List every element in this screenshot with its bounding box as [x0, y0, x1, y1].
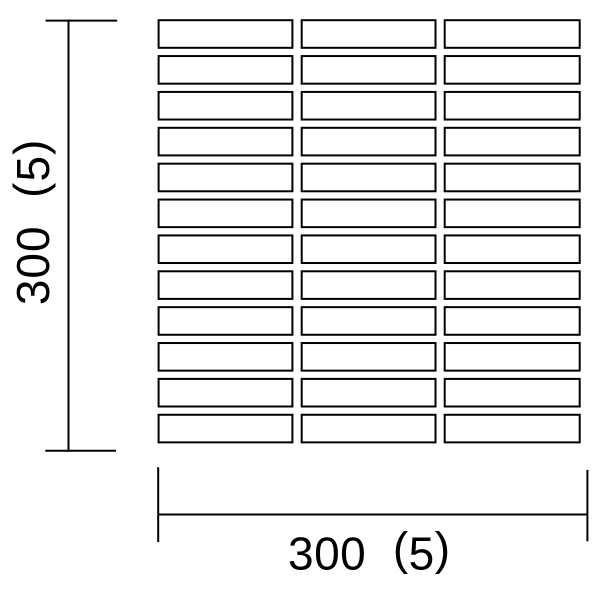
svg-text:300 (5): 300 (5)	[288, 522, 451, 579]
svg-text:300 (5): 300 (5)	[4, 139, 59, 306]
